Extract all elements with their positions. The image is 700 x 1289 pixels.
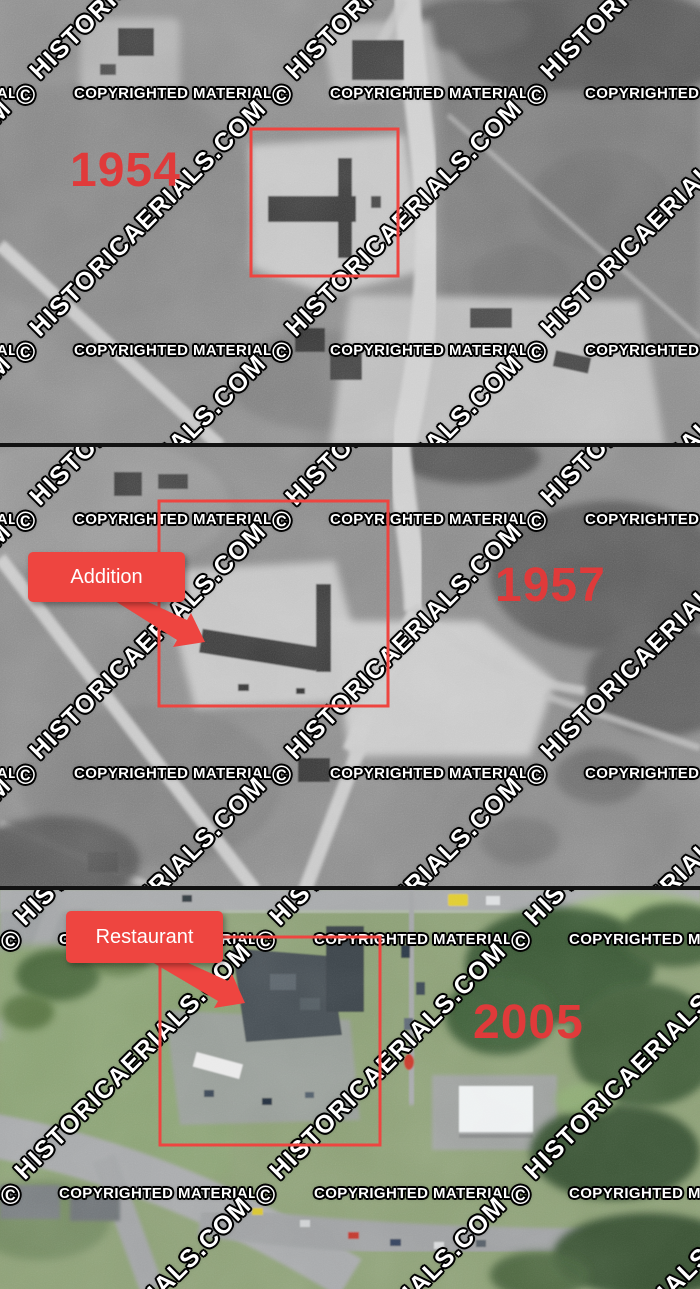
callout-restaurant-label: Restaurant bbox=[96, 926, 194, 949]
historic-aerials-comparison: ©COPYRIGHTED MATERIALHistoricAerials.Com… bbox=[0, 0, 700, 1289]
panel-1957: ©COPYRIGHTED MATERIALHistoricAerials.Com… bbox=[0, 446, 700, 890]
callout-restaurant: Restaurant bbox=[66, 911, 223, 963]
callout-addition-label: Addition bbox=[70, 566, 142, 589]
panel-2005: ©COPYRIGHTED MATERIALHistoricAerials.Com… bbox=[0, 890, 700, 1289]
aerial-photo-1954 bbox=[0, 0, 700, 446]
aerial-photo-1957 bbox=[0, 446, 700, 890]
callout-addition: Addition bbox=[28, 552, 185, 602]
panel-divider-1 bbox=[0, 443, 700, 447]
panel-1954: ©COPYRIGHTED MATERIALHistoricAerials.Com… bbox=[0, 0, 700, 446]
panel-divider-2 bbox=[0, 886, 700, 890]
